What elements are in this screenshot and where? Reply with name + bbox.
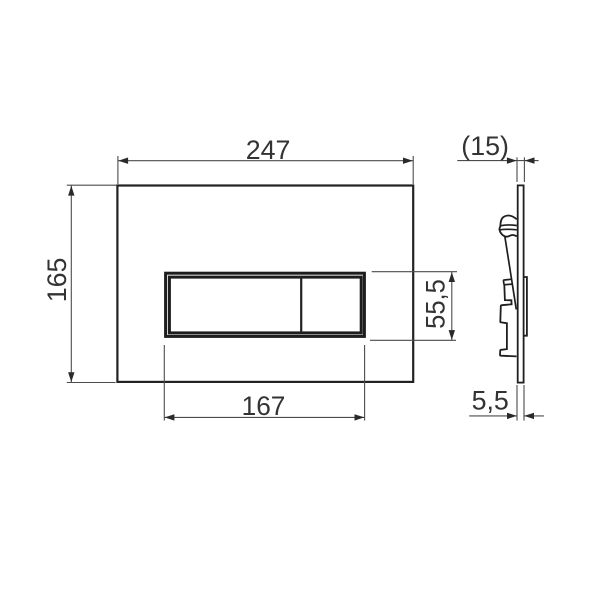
- svg-text:(15): (15): [461, 131, 509, 161]
- svg-text:55,5: 55,5: [420, 279, 451, 329]
- svg-text:247: 247: [246, 135, 291, 165]
- svg-text:5,5: 5,5: [472, 385, 509, 415]
- svg-text:165: 165: [42, 258, 72, 303]
- svg-text:167: 167: [242, 391, 286, 421]
